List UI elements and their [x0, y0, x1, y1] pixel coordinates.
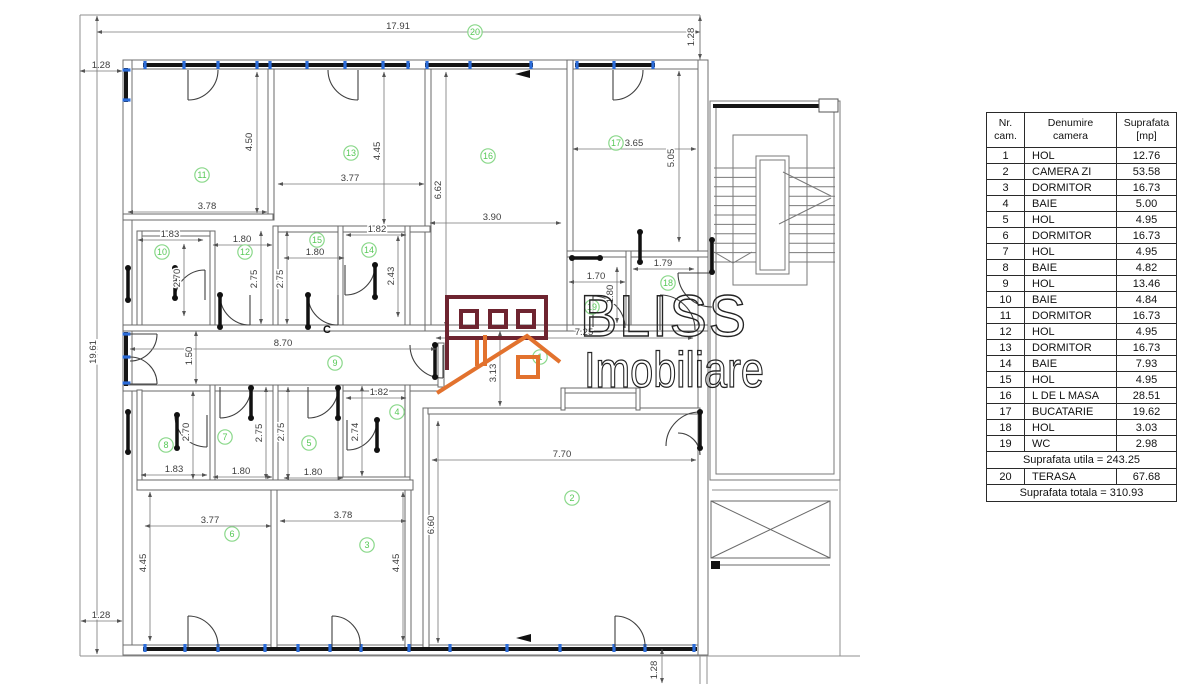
dimension-label: 6.60: [426, 516, 437, 535]
table-cell: 5.00: [1117, 196, 1177, 212]
jamb-dot: [305, 292, 311, 298]
table-cell: HOL: [1025, 244, 1117, 260]
table-cell: 4.95: [1117, 372, 1177, 388]
dimension-label: 3.77: [341, 173, 360, 184]
table-cell: 28.51: [1117, 388, 1177, 404]
dimension-label: 1.82: [370, 387, 389, 398]
table-row: 11DORMITOR16.73: [987, 308, 1177, 324]
table-cell: 13.46: [1117, 276, 1177, 292]
dimension-label: 4.45: [372, 142, 383, 161]
table-cell: 5: [987, 212, 1025, 228]
jamb-dot: [335, 415, 341, 421]
room-marker-number: 4: [394, 407, 399, 417]
dimension-label: 2.75: [249, 270, 260, 289]
table-cell: HOL: [1025, 420, 1117, 436]
window-tick: [692, 644, 695, 652]
dimension-label: 4.45: [138, 554, 149, 573]
window-tick: [123, 355, 131, 358]
table-cell: 4.82: [1117, 260, 1177, 276]
legend-table: Nr. cam.Denumire cameraSuprafata [mp] 1H…: [986, 112, 1177, 502]
table-row: 10BAIE4.84: [987, 292, 1177, 308]
jamb-dot: [372, 294, 378, 300]
table-cell: 4.95: [1117, 324, 1177, 340]
legend-table-container: Nr. cam.Denumire cameraSuprafata [mp] 1H…: [986, 112, 1176, 502]
table-cell: BAIE: [1025, 292, 1117, 308]
dimension-label: 2.70: [172, 269, 183, 288]
dimension-label: 3.78: [334, 510, 353, 521]
table-cell: 15: [987, 372, 1025, 388]
dimension-label: 1.28: [649, 661, 660, 680]
dimension-label: 1.83: [165, 464, 184, 475]
table-cell: 4: [987, 196, 1025, 212]
table-cell: DORMITOR: [1025, 340, 1117, 356]
jamb-dot: [374, 417, 380, 423]
dimension-label: 1.50: [184, 347, 195, 366]
window-tick: [216, 61, 219, 69]
table-row: 2CAMERA ZI53.58: [987, 164, 1177, 180]
table-cell: 6: [987, 228, 1025, 244]
dimension-label: 3.13: [488, 364, 499, 383]
dimension-label: 1.28: [686, 28, 697, 47]
window-tick: [123, 381, 131, 384]
window-tick: [575, 61, 578, 69]
jamb-dot: [125, 297, 131, 303]
room-marker-number: 11: [197, 170, 206, 180]
room-marker-number: 12: [240, 247, 250, 257]
table-cell: 16: [987, 388, 1025, 404]
table-cell: 19.62: [1117, 404, 1177, 420]
table-cell: 9: [987, 276, 1025, 292]
table-row: 7HOL4.95: [987, 244, 1177, 260]
jamb-dot: [569, 255, 575, 261]
jamb-dot: [709, 269, 715, 275]
logo-subtitle: Imobiliare: [584, 342, 764, 398]
window-tick: [381, 61, 384, 69]
window-tick: [328, 644, 331, 652]
jamb-dot: [335, 385, 341, 391]
table-cell: 3: [987, 180, 1025, 196]
window-tick: [143, 61, 146, 69]
dimension-label: 17.91: [386, 21, 410, 32]
dimension-label: 2.75: [275, 270, 286, 289]
table-cell: 3.03: [1117, 420, 1177, 436]
table-cell: 4.95: [1117, 244, 1177, 260]
table-cell: HOL: [1025, 212, 1117, 228]
legend-table-header: Nr. cam.Denumire cameraSuprafata [mp]: [987, 113, 1177, 148]
table-row: 16L DE L MASA28.51: [987, 388, 1177, 404]
jamb-dot: [637, 259, 643, 265]
table-cell: HOL: [1025, 148, 1117, 164]
jamb-dot: [174, 445, 180, 451]
table-cell: CAMERA ZI: [1025, 164, 1117, 180]
jamb-dot: [372, 262, 378, 268]
table-row: 5HOL4.95: [987, 212, 1177, 228]
dimension-label: 1.80: [304, 467, 323, 478]
table-cell: DORMITOR: [1025, 308, 1117, 324]
window-tick: [406, 61, 409, 69]
jamb-dot: [597, 255, 603, 261]
table-row: 6DORMITOR16.73: [987, 228, 1177, 244]
dimension-label: 19.61: [88, 340, 99, 364]
room-marker-number: 17: [611, 138, 621, 148]
room-marker-number: 14: [364, 245, 374, 255]
table-row: 4BAIE5.00: [987, 196, 1177, 212]
window-tick: [505, 644, 508, 652]
jamb-dot: [432, 342, 438, 348]
jamb-dot: [172, 295, 178, 301]
jamb-dot: [125, 449, 131, 455]
table-cell-total: Suprafata utila = 243.25: [987, 452, 1177, 469]
section-label: C: [323, 324, 331, 336]
jamb-dot: [305, 324, 311, 330]
table-row: 15HOL4.95: [987, 372, 1177, 388]
subtotal-row: Suprafata utila = 243.25: [987, 452, 1177, 469]
table-cell: 16.73: [1117, 308, 1177, 324]
table-row: 17BUCATARIE19.62: [987, 404, 1177, 420]
jamb-dot: [125, 409, 131, 415]
room-marker-number: 20: [470, 27, 480, 37]
room-marker-number: 6: [229, 529, 234, 539]
table-row: 8BAIE4.82: [987, 260, 1177, 276]
table-row: 19WC2.98: [987, 436, 1177, 452]
table-cell: L DE L MASA: [1025, 388, 1117, 404]
dimension-label: 3.78: [198, 201, 217, 212]
table-cell: 53.58: [1117, 164, 1177, 180]
table-cell: 11: [987, 308, 1025, 324]
window-tick: [468, 61, 471, 69]
room-marker-number: 5: [306, 438, 311, 448]
dimension-label: 1.70: [587, 271, 606, 282]
table-cell: 16.73: [1117, 340, 1177, 356]
table-cell: 2.98: [1117, 436, 1177, 452]
dimension-label: 4.45: [391, 554, 402, 573]
total-row: Suprafata totala = 310.93: [987, 485, 1177, 502]
window-tick: [558, 644, 561, 652]
window-tick: [143, 644, 146, 652]
table-cell: 17: [987, 404, 1025, 420]
dimension-label: 8.70: [274, 338, 293, 349]
dimension-label: 2.70: [181, 423, 192, 442]
room-marker-number: 7: [222, 432, 227, 442]
table-cell: 16.73: [1117, 180, 1177, 196]
window-tick: [123, 68, 131, 71]
room-marker-number: 16: [483, 151, 493, 161]
legend-header-cell: Denumire camera: [1025, 113, 1117, 148]
jamb-dot: [174, 412, 180, 418]
dimension-label: 1.80: [233, 234, 252, 245]
dimension-label: 1.83: [161, 229, 180, 240]
dimension-label: 2.74: [350, 423, 361, 442]
room-marker-number: 2: [569, 493, 574, 503]
logo-title: BLISS: [580, 284, 748, 349]
window-tick: [425, 61, 428, 69]
window-tick: [183, 644, 186, 652]
dimension-label: 2.75: [254, 424, 265, 443]
jamb-dot: [217, 324, 223, 330]
table-cell: 16.73: [1117, 228, 1177, 244]
table-row: 18HOL3.03: [987, 420, 1177, 436]
dimension-label: 1.28: [92, 60, 111, 71]
dimension-label: 2.43: [386, 267, 397, 286]
table-cell: 7: [987, 244, 1025, 260]
table-cell: WC: [1025, 436, 1117, 452]
dimension-label: 3.65: [625, 138, 644, 149]
table-cell: 10: [987, 292, 1025, 308]
dimension-label: 3.90: [483, 212, 502, 223]
table-cell: 4.95: [1117, 212, 1177, 228]
legend-header-cell: Suprafata [mp]: [1117, 113, 1177, 148]
table-cell: BUCATARIE: [1025, 404, 1117, 420]
dimension-label: 1.80: [232, 466, 251, 477]
table-cell: 12: [987, 324, 1025, 340]
window-tick: [123, 98, 131, 101]
table-row: 3DORMITOR16.73: [987, 180, 1177, 196]
dimension-label: 1.80: [306, 247, 325, 258]
jamb-dot: [125, 265, 131, 271]
room-marker-number: 10: [157, 247, 167, 257]
table-row: 13DORMITOR16.73: [987, 340, 1177, 356]
table-cell: 8: [987, 260, 1025, 276]
table-cell: DORMITOR: [1025, 228, 1117, 244]
dimension-label: 3.77: [201, 515, 220, 526]
table-row: 1HOL12.76: [987, 148, 1177, 164]
table-cell: 4.84: [1117, 292, 1177, 308]
table-cell: TERASA: [1025, 469, 1117, 485]
table-row: 20TERASA67.68: [987, 469, 1177, 485]
dimension-label: 1.79: [654, 258, 673, 269]
window-tick: [612, 61, 615, 69]
table-cell: 19: [987, 436, 1025, 452]
table-cell: 20: [987, 469, 1025, 485]
window-tick: [268, 61, 271, 69]
room-marker-number: 13: [346, 148, 356, 158]
table-cell: 2: [987, 164, 1025, 180]
elevator-shaft: [711, 501, 830, 569]
table-row: 14BAIE7.93: [987, 356, 1177, 372]
table-cell: HOL: [1025, 372, 1117, 388]
table-cell: 18: [987, 420, 1025, 436]
jamb-dot: [432, 374, 438, 380]
room-marker-number: 15: [312, 235, 322, 245]
table-row: 12HOL4.95: [987, 324, 1177, 340]
table-cell: BAIE: [1025, 196, 1117, 212]
table-cell: HOL: [1025, 276, 1117, 292]
jamb-dot: [709, 237, 715, 243]
window-tick: [651, 61, 654, 69]
dimension-label: 5.05: [666, 149, 677, 168]
jamb-dot: [217, 292, 223, 298]
room-marker-number: 8: [163, 440, 168, 450]
logo: BLISS Imobiliare: [437, 284, 764, 398]
legend-header-cell: Nr. cam.: [987, 113, 1025, 148]
dimension-label: 1.28: [92, 610, 111, 621]
table-cell: DORMITOR: [1025, 180, 1117, 196]
table-cell: 14: [987, 356, 1025, 372]
table-cell: HOL: [1025, 324, 1117, 340]
window-tick: [296, 644, 299, 652]
window-tick: [343, 61, 346, 69]
dimension-label: 4.50: [244, 133, 255, 152]
table-cell: 1: [987, 148, 1025, 164]
jamb-dot: [697, 409, 703, 415]
table-cell: 7.93: [1117, 356, 1177, 372]
dimension-label: 7.70: [553, 449, 572, 460]
window-tick: [255, 61, 258, 69]
window-tick: [305, 61, 308, 69]
window-tick: [448, 644, 451, 652]
room-marker-number: 3: [364, 540, 369, 550]
window-tick: [263, 644, 266, 652]
table-row: 9HOL13.46: [987, 276, 1177, 292]
dimension-label: 2.75: [276, 423, 287, 442]
table-cell: 12.76: [1117, 148, 1177, 164]
jamb-dot: [248, 415, 254, 421]
jamb-dot: [697, 445, 703, 451]
jamb-dot: [637, 229, 643, 235]
table-cell: BAIE: [1025, 260, 1117, 276]
jamb-dot: [248, 385, 254, 391]
window-tick: [529, 61, 532, 69]
room-marker-number: 9: [332, 358, 337, 368]
floor-plan-page: 17.911.281.2819.611.284.503.784.453.776.…: [0, 0, 1200, 684]
window-tick: [182, 61, 185, 69]
table-cell-total: Suprafata totala = 310.93: [987, 485, 1177, 502]
dimension-label: 6.62: [433, 181, 444, 200]
table-cell: 67.68: [1117, 469, 1177, 485]
jamb-dot: [374, 447, 380, 453]
table-cell: BAIE: [1025, 356, 1117, 372]
dimension-label: 1.82: [368, 224, 387, 235]
table-cell: 13: [987, 340, 1025, 356]
window-tick: [123, 332, 131, 335]
window-tick: [407, 644, 410, 652]
